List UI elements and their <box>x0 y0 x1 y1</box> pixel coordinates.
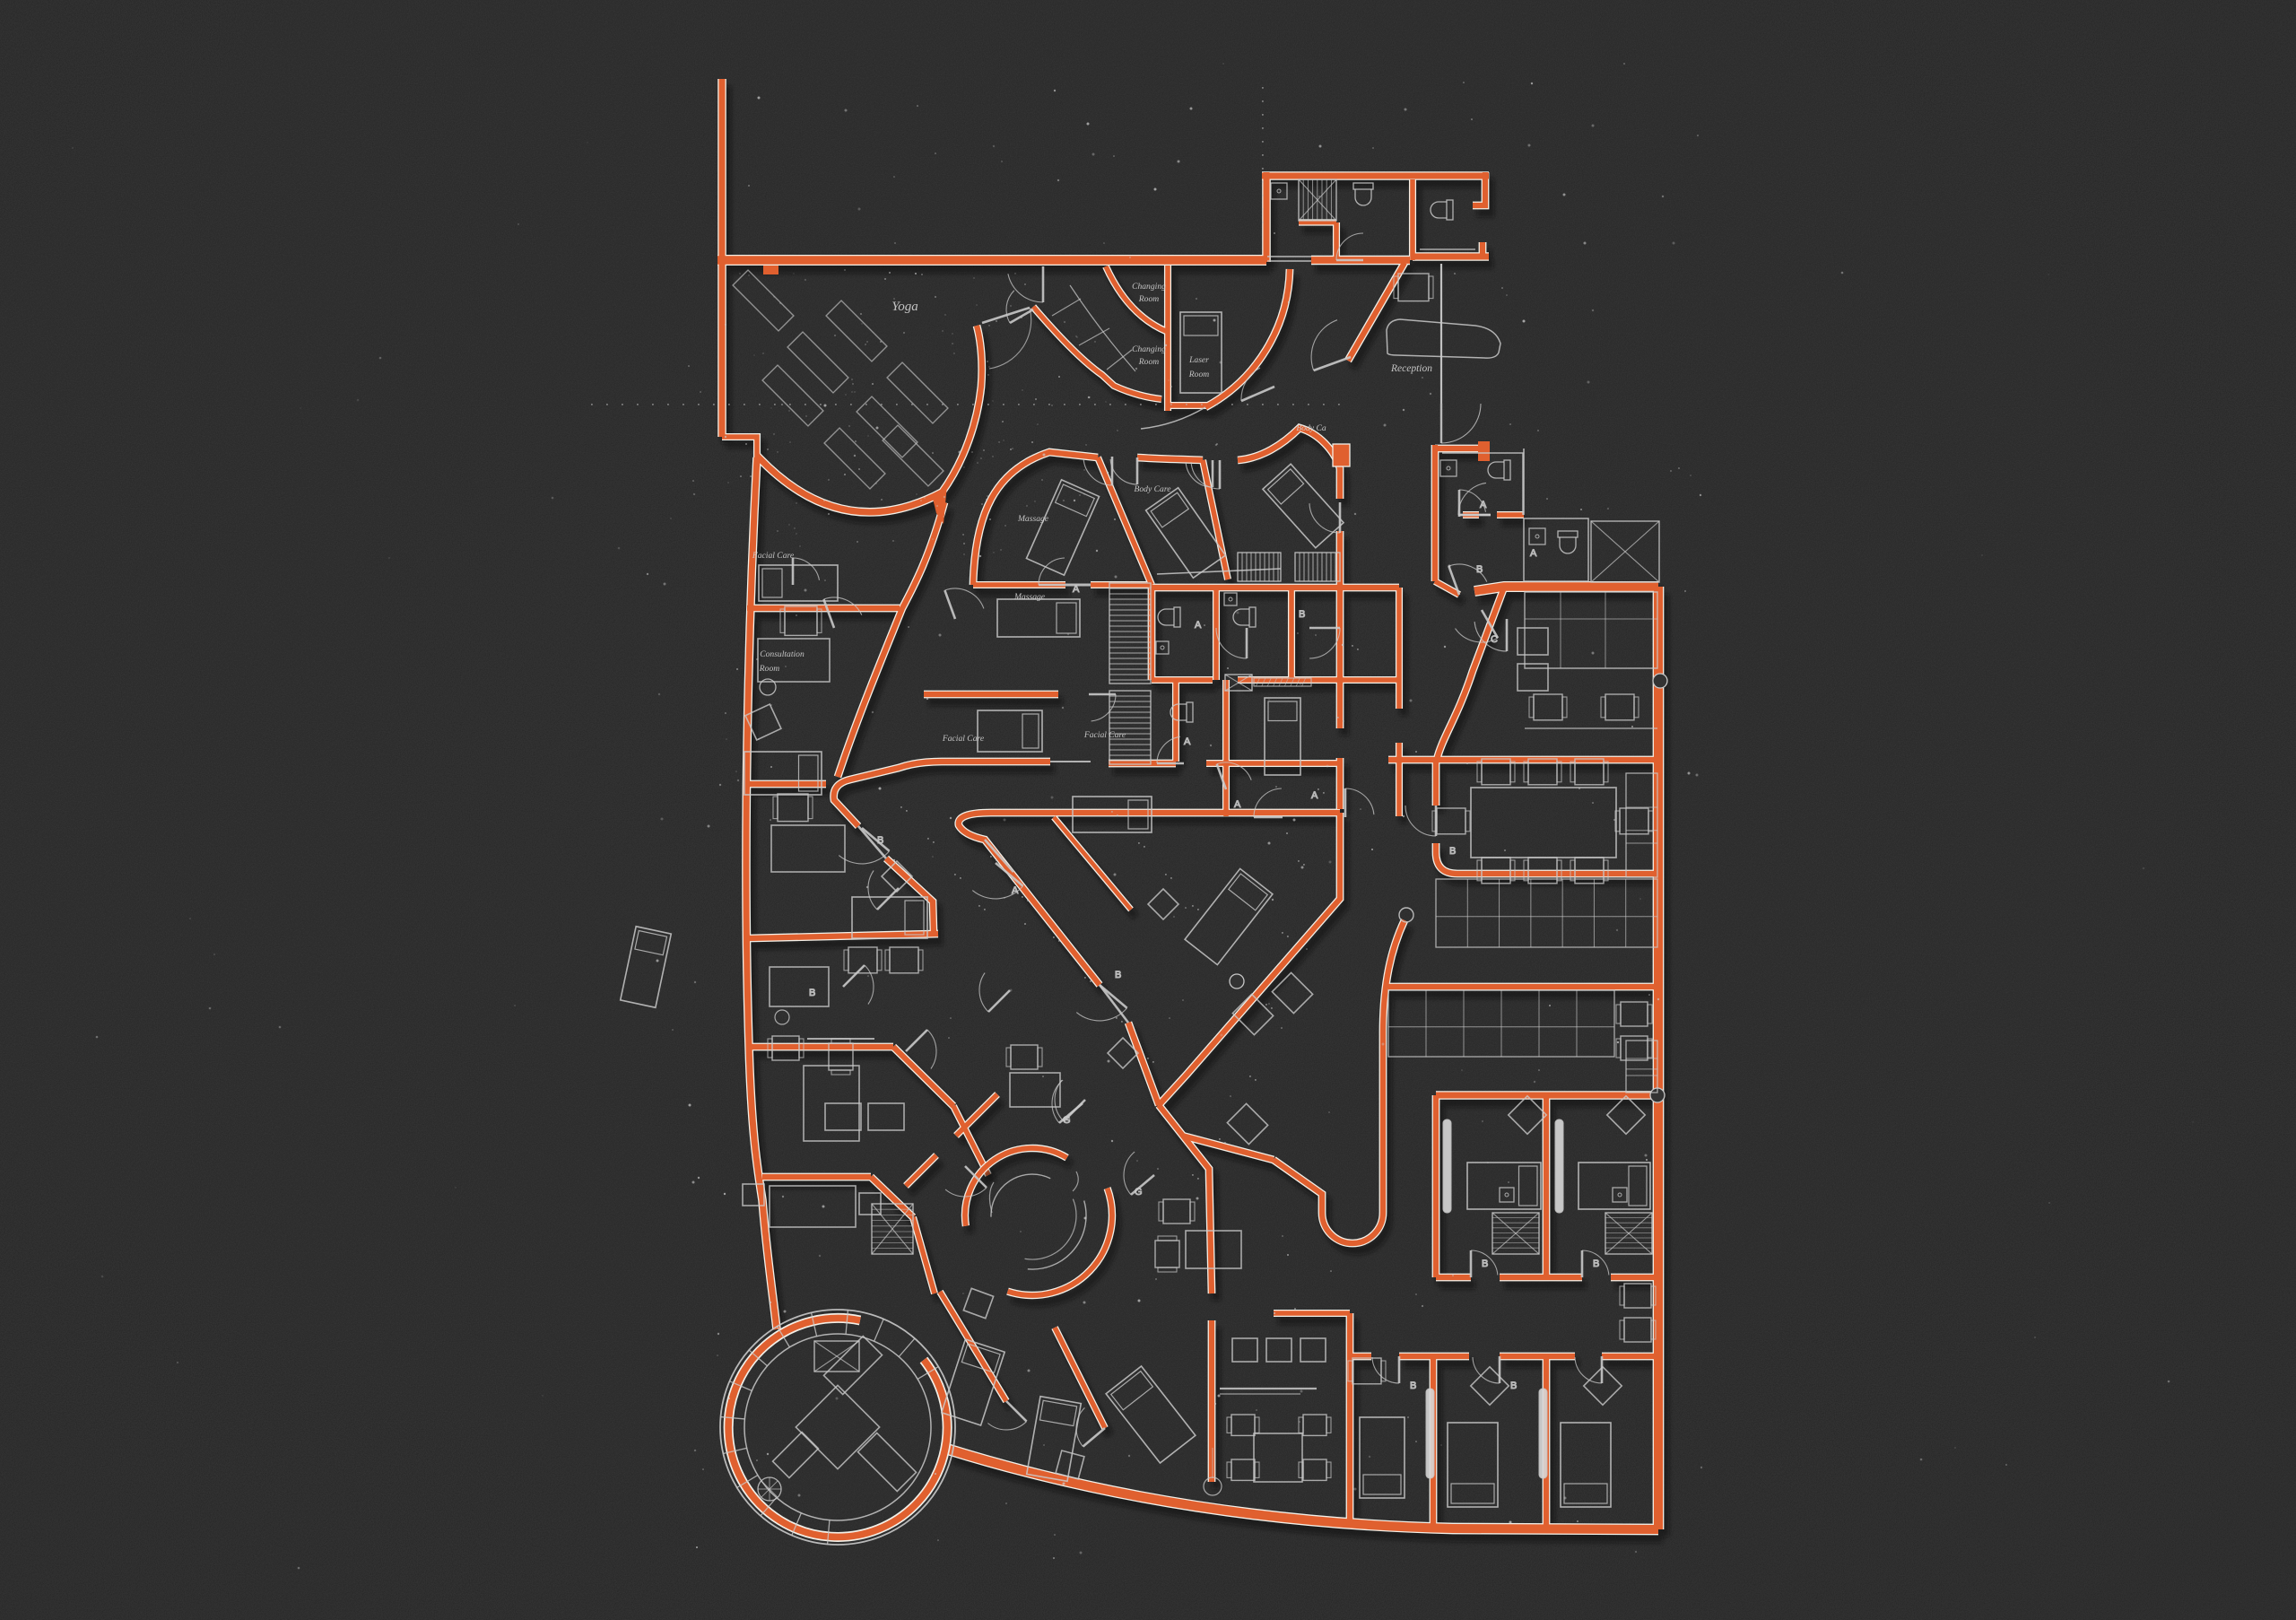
svg-text:A: A <box>1012 885 1019 896</box>
svg-text:Changing: Changing <box>1132 282 1166 292</box>
svg-text:Room: Room <box>759 664 779 674</box>
svg-text:B: B <box>1482 1259 1488 1269</box>
svg-text:Changing: Changing <box>1132 344 1166 354</box>
svg-text:B: B <box>1115 970 1121 980</box>
svg-text:Facial Care: Facial Care <box>942 734 985 744</box>
svg-text:A: A <box>1195 620 1202 631</box>
svg-text:Laser: Laser <box>1188 355 1209 365</box>
svg-text:G: G <box>1135 1187 1143 1198</box>
svg-text:Massage: Massage <box>1013 592 1046 602</box>
svg-text:B: B <box>1510 1380 1517 1391</box>
svg-text:Room: Room <box>1188 370 1209 379</box>
svg-text:B: B <box>1410 1380 1416 1391</box>
svg-text:Massage: Massage <box>1017 514 1049 524</box>
svg-text:B: B <box>1449 846 1456 857</box>
svg-text:B: B <box>877 835 883 846</box>
svg-text:A: A <box>1311 790 1318 801</box>
svg-text:B: B <box>809 988 815 998</box>
svg-text:B: B <box>1476 564 1483 575</box>
svg-text:Room: Room <box>1138 294 1159 304</box>
svg-text:Room: Room <box>1138 357 1159 367</box>
svg-text:A: A <box>1234 799 1241 810</box>
svg-text:G: G <box>1063 1115 1071 1126</box>
svg-text:B: B <box>1593 1259 1599 1269</box>
svg-text:Facial Care: Facial Care <box>1083 730 1126 740</box>
svg-text:A: A <box>1530 548 1537 559</box>
svg-text:Body Care: Body Care <box>1135 484 1172 494</box>
svg-text:Yoga: Yoga <box>891 300 918 314</box>
svg-text:Reception: Reception <box>1390 363 1432 374</box>
svg-text:B: B <box>1299 609 1305 620</box>
svg-text:A: A <box>1480 500 1487 510</box>
svg-text:A: A <box>1073 584 1080 595</box>
svg-text:C: C <box>1491 634 1498 645</box>
svg-text:Consultation: Consultation <box>760 649 804 659</box>
svg-text:Facial Care: Facial Care <box>752 551 795 561</box>
svg-text:Body Ca: Body Ca <box>1296 423 1326 433</box>
svg-text:A: A <box>1184 736 1191 747</box>
